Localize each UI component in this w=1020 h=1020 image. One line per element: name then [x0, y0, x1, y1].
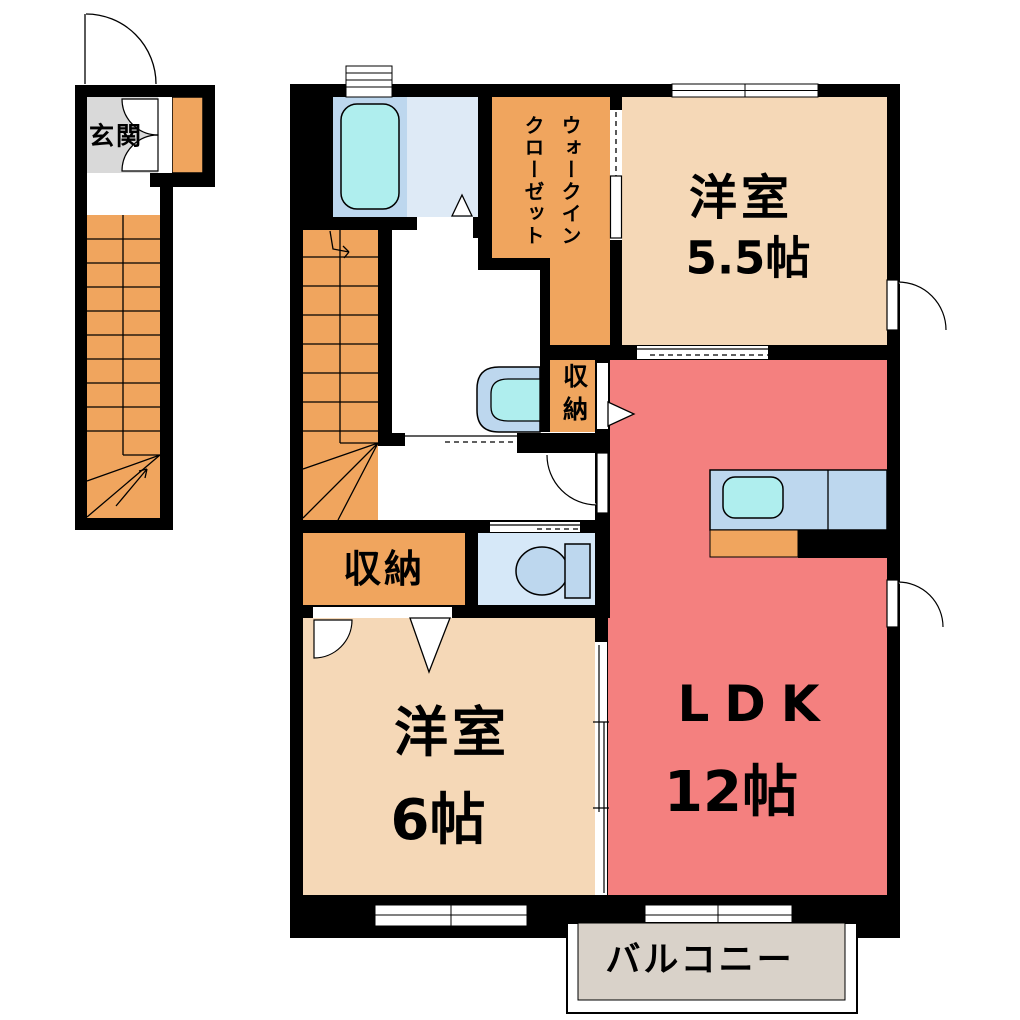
wic-pocket-door	[610, 110, 622, 240]
shoe-cabinet	[172, 97, 203, 173]
genkan-label: 玄関	[89, 124, 143, 149]
floor-plan-drawing	[0, 0, 1020, 1020]
western-room-5-5-size: 5.5帖	[686, 236, 811, 281]
kitchen-cabinet	[710, 530, 798, 557]
western-room-6-window	[375, 905, 527, 926]
genkan-door-opening	[158, 97, 172, 173]
balcony-label: バルコニー	[605, 944, 794, 979]
wash-basin-bowl	[491, 379, 540, 421]
sliding-door-toilet	[490, 522, 580, 532]
ldk-exterior-door	[887, 580, 943, 627]
western-room-6-opening	[313, 607, 452, 618]
washroom-opening	[417, 217, 473, 228]
toilet-bowl	[516, 547, 568, 595]
western-room-5-5-name: 洋室	[689, 174, 793, 222]
storage-lower-label: 収納	[343, 550, 425, 588]
bathtub	[341, 104, 399, 209]
walk-in-closet-label: ウォークイン クローゼット	[514, 115, 588, 247]
floor-plan: 玄関 ウォークイン クローゼット 洋室 5.5帖 LDK 12帖 洋室 6帖 収…	[0, 0, 1020, 1020]
western-room-6-size: 6帖	[391, 793, 486, 849]
storage-upper-opening	[597, 363, 608, 429]
western-room-5-5-window	[672, 84, 818, 97]
western-room-5-5-door	[887, 280, 946, 330]
ldk-name: LDK	[677, 679, 834, 729]
sliding-door-55-ldk	[637, 346, 768, 359]
sliding-partition-6-ldk	[593, 642, 609, 895]
washroom-floor	[407, 97, 478, 217]
kitchen-sink	[723, 477, 783, 518]
western-room-6-name: 洋室	[394, 706, 510, 760]
genkan-entry-door	[85, 14, 156, 84]
sliding-door-washroom	[405, 433, 517, 446]
ldk-hall-door	[547, 453, 608, 513]
ldk-size: 12帖	[664, 765, 798, 821]
toilet-tank	[565, 544, 590, 598]
storage-upper-label: 収納	[562, 363, 587, 429]
bathroom-window	[346, 66, 392, 97]
